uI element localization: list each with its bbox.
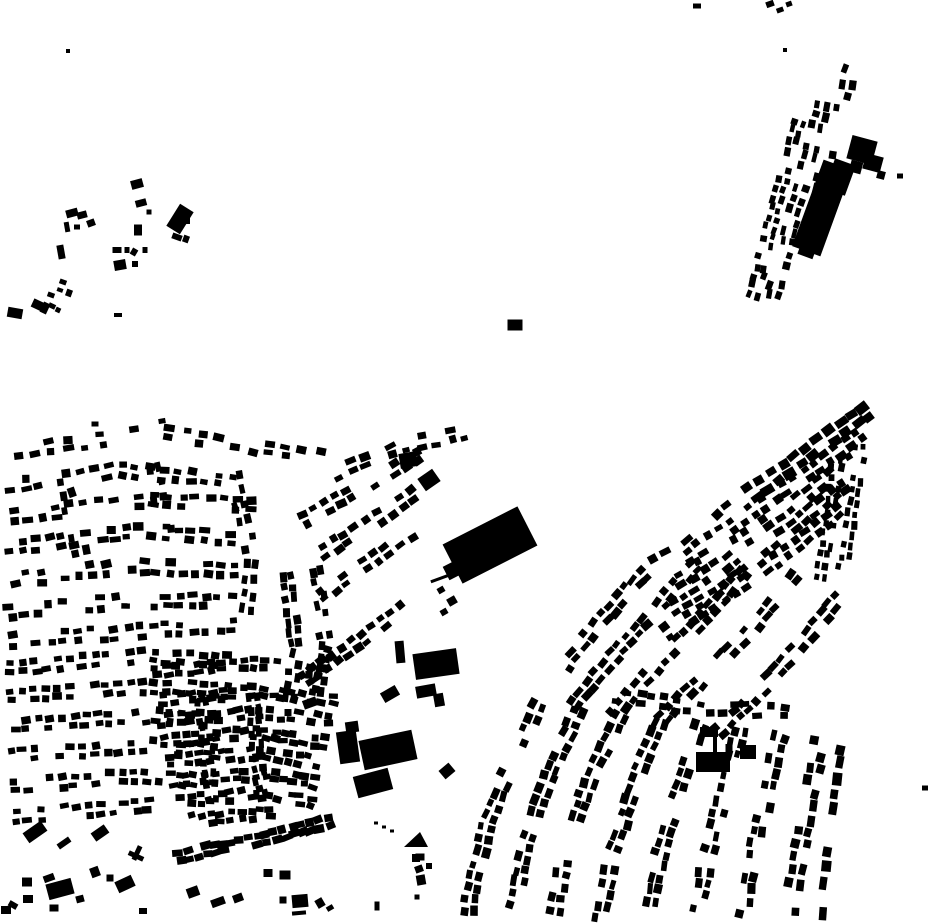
building bbox=[365, 621, 376, 631]
building bbox=[807, 815, 816, 827]
building bbox=[659, 703, 667, 711]
building bbox=[315, 632, 323, 641]
building bbox=[509, 888, 517, 897]
building bbox=[58, 715, 66, 723]
building bbox=[776, 6, 784, 13]
building bbox=[54, 655, 63, 661]
building bbox=[673, 698, 681, 704]
building bbox=[642, 896, 651, 907]
building bbox=[305, 671, 313, 679]
building bbox=[211, 779, 218, 787]
building bbox=[59, 278, 67, 285]
building bbox=[89, 866, 101, 878]
building bbox=[347, 521, 359, 532]
building bbox=[46, 774, 54, 782]
building bbox=[171, 476, 179, 485]
building bbox=[830, 603, 842, 615]
building bbox=[710, 844, 720, 855]
building bbox=[481, 808, 490, 819]
building bbox=[598, 878, 607, 888]
building bbox=[779, 186, 786, 194]
building bbox=[94, 496, 103, 503]
building bbox=[61, 628, 69, 634]
building bbox=[679, 782, 689, 792]
building bbox=[63, 436, 73, 444]
building bbox=[720, 500, 732, 511]
building bbox=[259, 739, 264, 748]
building bbox=[75, 572, 82, 580]
building bbox=[155, 778, 163, 786]
building bbox=[44, 715, 54, 724]
building bbox=[269, 775, 279, 782]
building bbox=[697, 548, 709, 559]
building bbox=[71, 803, 81, 811]
building bbox=[64, 222, 71, 233]
building bbox=[57, 772, 67, 781]
building bbox=[227, 694, 236, 699]
building bbox=[795, 509, 804, 518]
building bbox=[256, 806, 264, 812]
building bbox=[848, 80, 857, 91]
building bbox=[750, 696, 761, 707]
building bbox=[239, 664, 249, 672]
building bbox=[172, 649, 181, 657]
building bbox=[742, 727, 749, 737]
building bbox=[238, 484, 245, 494]
building bbox=[163, 711, 173, 718]
building bbox=[291, 894, 308, 908]
building bbox=[56, 532, 65, 540]
building bbox=[588, 666, 599, 677]
building bbox=[791, 907, 799, 916]
building bbox=[200, 479, 208, 486]
building bbox=[635, 629, 644, 638]
building bbox=[689, 904, 697, 912]
building bbox=[251, 559, 259, 569]
building bbox=[191, 731, 199, 737]
building bbox=[666, 827, 676, 839]
building bbox=[151, 604, 158, 611]
building bbox=[48, 302, 56, 309]
landmark-buildings-layer bbox=[128, 135, 903, 862]
building bbox=[226, 627, 235, 633]
building bbox=[658, 825, 666, 835]
building bbox=[789, 124, 795, 133]
building bbox=[88, 571, 98, 579]
building bbox=[142, 806, 152, 814]
building bbox=[68, 534, 75, 543]
building bbox=[631, 762, 639, 771]
building bbox=[197, 791, 205, 797]
building bbox=[167, 762, 174, 768]
building bbox=[149, 736, 157, 744]
building bbox=[125, 623, 135, 632]
building bbox=[739, 526, 750, 537]
building bbox=[708, 808, 716, 817]
building bbox=[134, 807, 143, 815]
building bbox=[282, 452, 291, 459]
building bbox=[289, 730, 297, 738]
building bbox=[505, 900, 515, 910]
building bbox=[203, 850, 212, 857]
building bbox=[630, 795, 639, 806]
building bbox=[171, 731, 180, 739]
building bbox=[600, 732, 609, 742]
building bbox=[37, 579, 47, 586]
building bbox=[743, 502, 752, 511]
building bbox=[721, 550, 733, 561]
building bbox=[306, 801, 315, 810]
building bbox=[213, 594, 220, 600]
building bbox=[280, 444, 291, 451]
building bbox=[194, 699, 200, 707]
building bbox=[489, 815, 499, 825]
building bbox=[197, 812, 206, 820]
building bbox=[757, 558, 768, 568]
building bbox=[370, 482, 380, 491]
building bbox=[314, 897, 325, 909]
building bbox=[384, 608, 394, 618]
building bbox=[357, 555, 368, 564]
building bbox=[820, 528, 825, 535]
building bbox=[573, 789, 583, 799]
building bbox=[801, 184, 811, 193]
building bbox=[152, 649, 159, 656]
building bbox=[149, 623, 159, 629]
building bbox=[596, 756, 608, 769]
building bbox=[520, 865, 529, 874]
building bbox=[194, 749, 204, 756]
building bbox=[52, 692, 62, 700]
building bbox=[266, 812, 276, 819]
building bbox=[843, 92, 852, 101]
building bbox=[131, 778, 138, 785]
building bbox=[832, 772, 843, 786]
building bbox=[254, 692, 261, 701]
building bbox=[576, 813, 586, 824]
building bbox=[11, 787, 21, 793]
building bbox=[287, 571, 295, 580]
building bbox=[150, 665, 157, 671]
building bbox=[163, 602, 173, 608]
building bbox=[187, 793, 196, 800]
building bbox=[585, 792, 593, 803]
building bbox=[167, 525, 175, 533]
building bbox=[809, 800, 818, 812]
building bbox=[788, 864, 797, 875]
building bbox=[224, 787, 235, 795]
building bbox=[262, 838, 271, 846]
building bbox=[43, 873, 56, 883]
building bbox=[228, 687, 237, 694]
building bbox=[532, 715, 542, 726]
building bbox=[214, 710, 221, 716]
building bbox=[768, 243, 773, 251]
building bbox=[417, 469, 440, 492]
building bbox=[762, 596, 773, 607]
building bbox=[95, 431, 104, 437]
building bbox=[82, 544, 91, 555]
building bbox=[785, 1, 792, 8]
building bbox=[846, 552, 852, 560]
building bbox=[131, 473, 139, 481]
building bbox=[229, 658, 237, 665]
building bbox=[697, 701, 705, 708]
building bbox=[854, 500, 860, 508]
building bbox=[800, 121, 807, 129]
building bbox=[5, 669, 15, 675]
building bbox=[584, 767, 593, 777]
building bbox=[686, 687, 699, 700]
building bbox=[179, 570, 189, 577]
building bbox=[95, 810, 105, 818]
building bbox=[41, 685, 50, 692]
building bbox=[580, 641, 591, 652]
building bbox=[752, 712, 762, 719]
building bbox=[197, 690, 207, 696]
building bbox=[249, 664, 257, 672]
building bbox=[664, 838, 673, 848]
building bbox=[250, 575, 257, 584]
building bbox=[91, 824, 110, 841]
building bbox=[248, 607, 254, 615]
building bbox=[19, 538, 27, 546]
building bbox=[852, 444, 858, 450]
building bbox=[113, 259, 127, 271]
building bbox=[316, 565, 324, 575]
building bbox=[302, 519, 312, 530]
building bbox=[107, 875, 114, 882]
building bbox=[236, 786, 246, 795]
building bbox=[71, 712, 81, 720]
building bbox=[544, 788, 554, 799]
building bbox=[786, 252, 794, 260]
building bbox=[320, 552, 331, 562]
building bbox=[170, 699, 179, 706]
building bbox=[103, 689, 114, 698]
building bbox=[336, 643, 347, 654]
building bbox=[635, 700, 645, 707]
building bbox=[671, 607, 682, 617]
building bbox=[466, 870, 474, 880]
building bbox=[801, 625, 812, 637]
building bbox=[341, 579, 350, 588]
building bbox=[445, 426, 456, 434]
building bbox=[113, 749, 123, 758]
building bbox=[561, 716, 571, 727]
building bbox=[187, 670, 194, 677]
building bbox=[754, 264, 760, 272]
building bbox=[770, 540, 781, 551]
building bbox=[49, 639, 57, 646]
building bbox=[729, 525, 740, 536]
building bbox=[236, 517, 243, 526]
building bbox=[56, 244, 65, 259]
building bbox=[140, 768, 148, 775]
building bbox=[281, 729, 290, 737]
building bbox=[310, 578, 317, 586]
building bbox=[177, 710, 185, 716]
building bbox=[230, 617, 237, 623]
building bbox=[754, 622, 766, 634]
building bbox=[30, 755, 38, 761]
building bbox=[669, 647, 681, 659]
building bbox=[160, 594, 171, 600]
building bbox=[770, 729, 778, 741]
building bbox=[284, 709, 291, 716]
building bbox=[114, 875, 135, 893]
building bbox=[5, 487, 16, 494]
building bbox=[803, 839, 812, 848]
building bbox=[159, 492, 167, 501]
building bbox=[272, 795, 282, 804]
building bbox=[240, 684, 247, 691]
building bbox=[612, 640, 621, 649]
building bbox=[276, 824, 286, 834]
building bbox=[296, 445, 307, 455]
building bbox=[280, 583, 288, 591]
building bbox=[122, 523, 131, 531]
building bbox=[319, 497, 330, 507]
building bbox=[599, 864, 607, 875]
building bbox=[304, 818, 314, 828]
building bbox=[774, 757, 783, 768]
building bbox=[784, 178, 791, 185]
building bbox=[661, 860, 668, 871]
building bbox=[821, 860, 832, 872]
building bbox=[238, 809, 247, 815]
building bbox=[29, 686, 37, 692]
building bbox=[394, 493, 404, 502]
building bbox=[676, 767, 684, 777]
building bbox=[486, 798, 494, 807]
building bbox=[807, 616, 817, 626]
building bbox=[307, 783, 318, 792]
building bbox=[90, 751, 100, 757]
building bbox=[101, 682, 109, 687]
building bbox=[670, 632, 681, 643]
building bbox=[508, 320, 523, 331]
building bbox=[9, 507, 20, 515]
building bbox=[241, 588, 248, 597]
building bbox=[19, 547, 27, 555]
building bbox=[689, 676, 699, 685]
building bbox=[104, 749, 112, 757]
building bbox=[191, 570, 199, 578]
building bbox=[783, 48, 787, 52]
building bbox=[182, 235, 190, 244]
building bbox=[204, 716, 213, 724]
building bbox=[660, 719, 670, 731]
building bbox=[96, 801, 106, 807]
building bbox=[209, 745, 215, 754]
building bbox=[781, 236, 786, 245]
building bbox=[137, 633, 147, 640]
building bbox=[51, 504, 60, 511]
building bbox=[266, 706, 275, 714]
building bbox=[683, 768, 694, 780]
building bbox=[662, 852, 670, 861]
building bbox=[262, 754, 271, 762]
building bbox=[568, 731, 578, 743]
building bbox=[236, 470, 244, 479]
building bbox=[612, 698, 620, 704]
building bbox=[635, 748, 644, 758]
building bbox=[850, 474, 856, 481]
building bbox=[11, 727, 21, 733]
building bbox=[855, 488, 861, 497]
building bbox=[527, 697, 539, 710]
building bbox=[590, 778, 599, 790]
building bbox=[228, 809, 235, 815]
building bbox=[568, 809, 577, 821]
building bbox=[202, 769, 209, 778]
building bbox=[187, 811, 195, 819]
building bbox=[202, 628, 209, 636]
building bbox=[579, 777, 589, 789]
building bbox=[157, 722, 166, 729]
building bbox=[23, 895, 33, 903]
building bbox=[626, 636, 638, 648]
building bbox=[113, 680, 123, 686]
building bbox=[237, 756, 245, 764]
building bbox=[619, 792, 630, 804]
building bbox=[464, 881, 473, 891]
building bbox=[166, 721, 173, 727]
building bbox=[199, 681, 208, 688]
building bbox=[808, 119, 816, 129]
building bbox=[256, 729, 262, 736]
building bbox=[772, 184, 779, 192]
building bbox=[416, 874, 427, 885]
building bbox=[100, 559, 112, 570]
building bbox=[109, 636, 118, 642]
building bbox=[283, 608, 290, 617]
building bbox=[217, 627, 225, 634]
building bbox=[136, 622, 144, 630]
building bbox=[176, 622, 183, 628]
building bbox=[196, 708, 205, 716]
building bbox=[367, 547, 378, 558]
building bbox=[86, 218, 96, 227]
building bbox=[751, 814, 761, 824]
building bbox=[604, 664, 615, 676]
building bbox=[521, 877, 529, 886]
building bbox=[303, 752, 312, 760]
building bbox=[185, 711, 196, 720]
building bbox=[562, 871, 571, 880]
building bbox=[294, 660, 303, 670]
building bbox=[186, 885, 201, 899]
building bbox=[78, 743, 86, 749]
building bbox=[824, 509, 830, 516]
building bbox=[202, 780, 210, 790]
building bbox=[803, 535, 814, 546]
building bbox=[842, 520, 849, 528]
building bbox=[57, 478, 64, 486]
building bbox=[85, 607, 93, 613]
building bbox=[718, 709, 728, 717]
building bbox=[353, 768, 393, 799]
building bbox=[730, 701, 739, 708]
building bbox=[820, 540, 826, 547]
building bbox=[334, 474, 344, 483]
building bbox=[378, 542, 390, 553]
building bbox=[834, 744, 845, 756]
building bbox=[284, 757, 293, 766]
building bbox=[139, 908, 147, 914]
building bbox=[326, 630, 333, 639]
